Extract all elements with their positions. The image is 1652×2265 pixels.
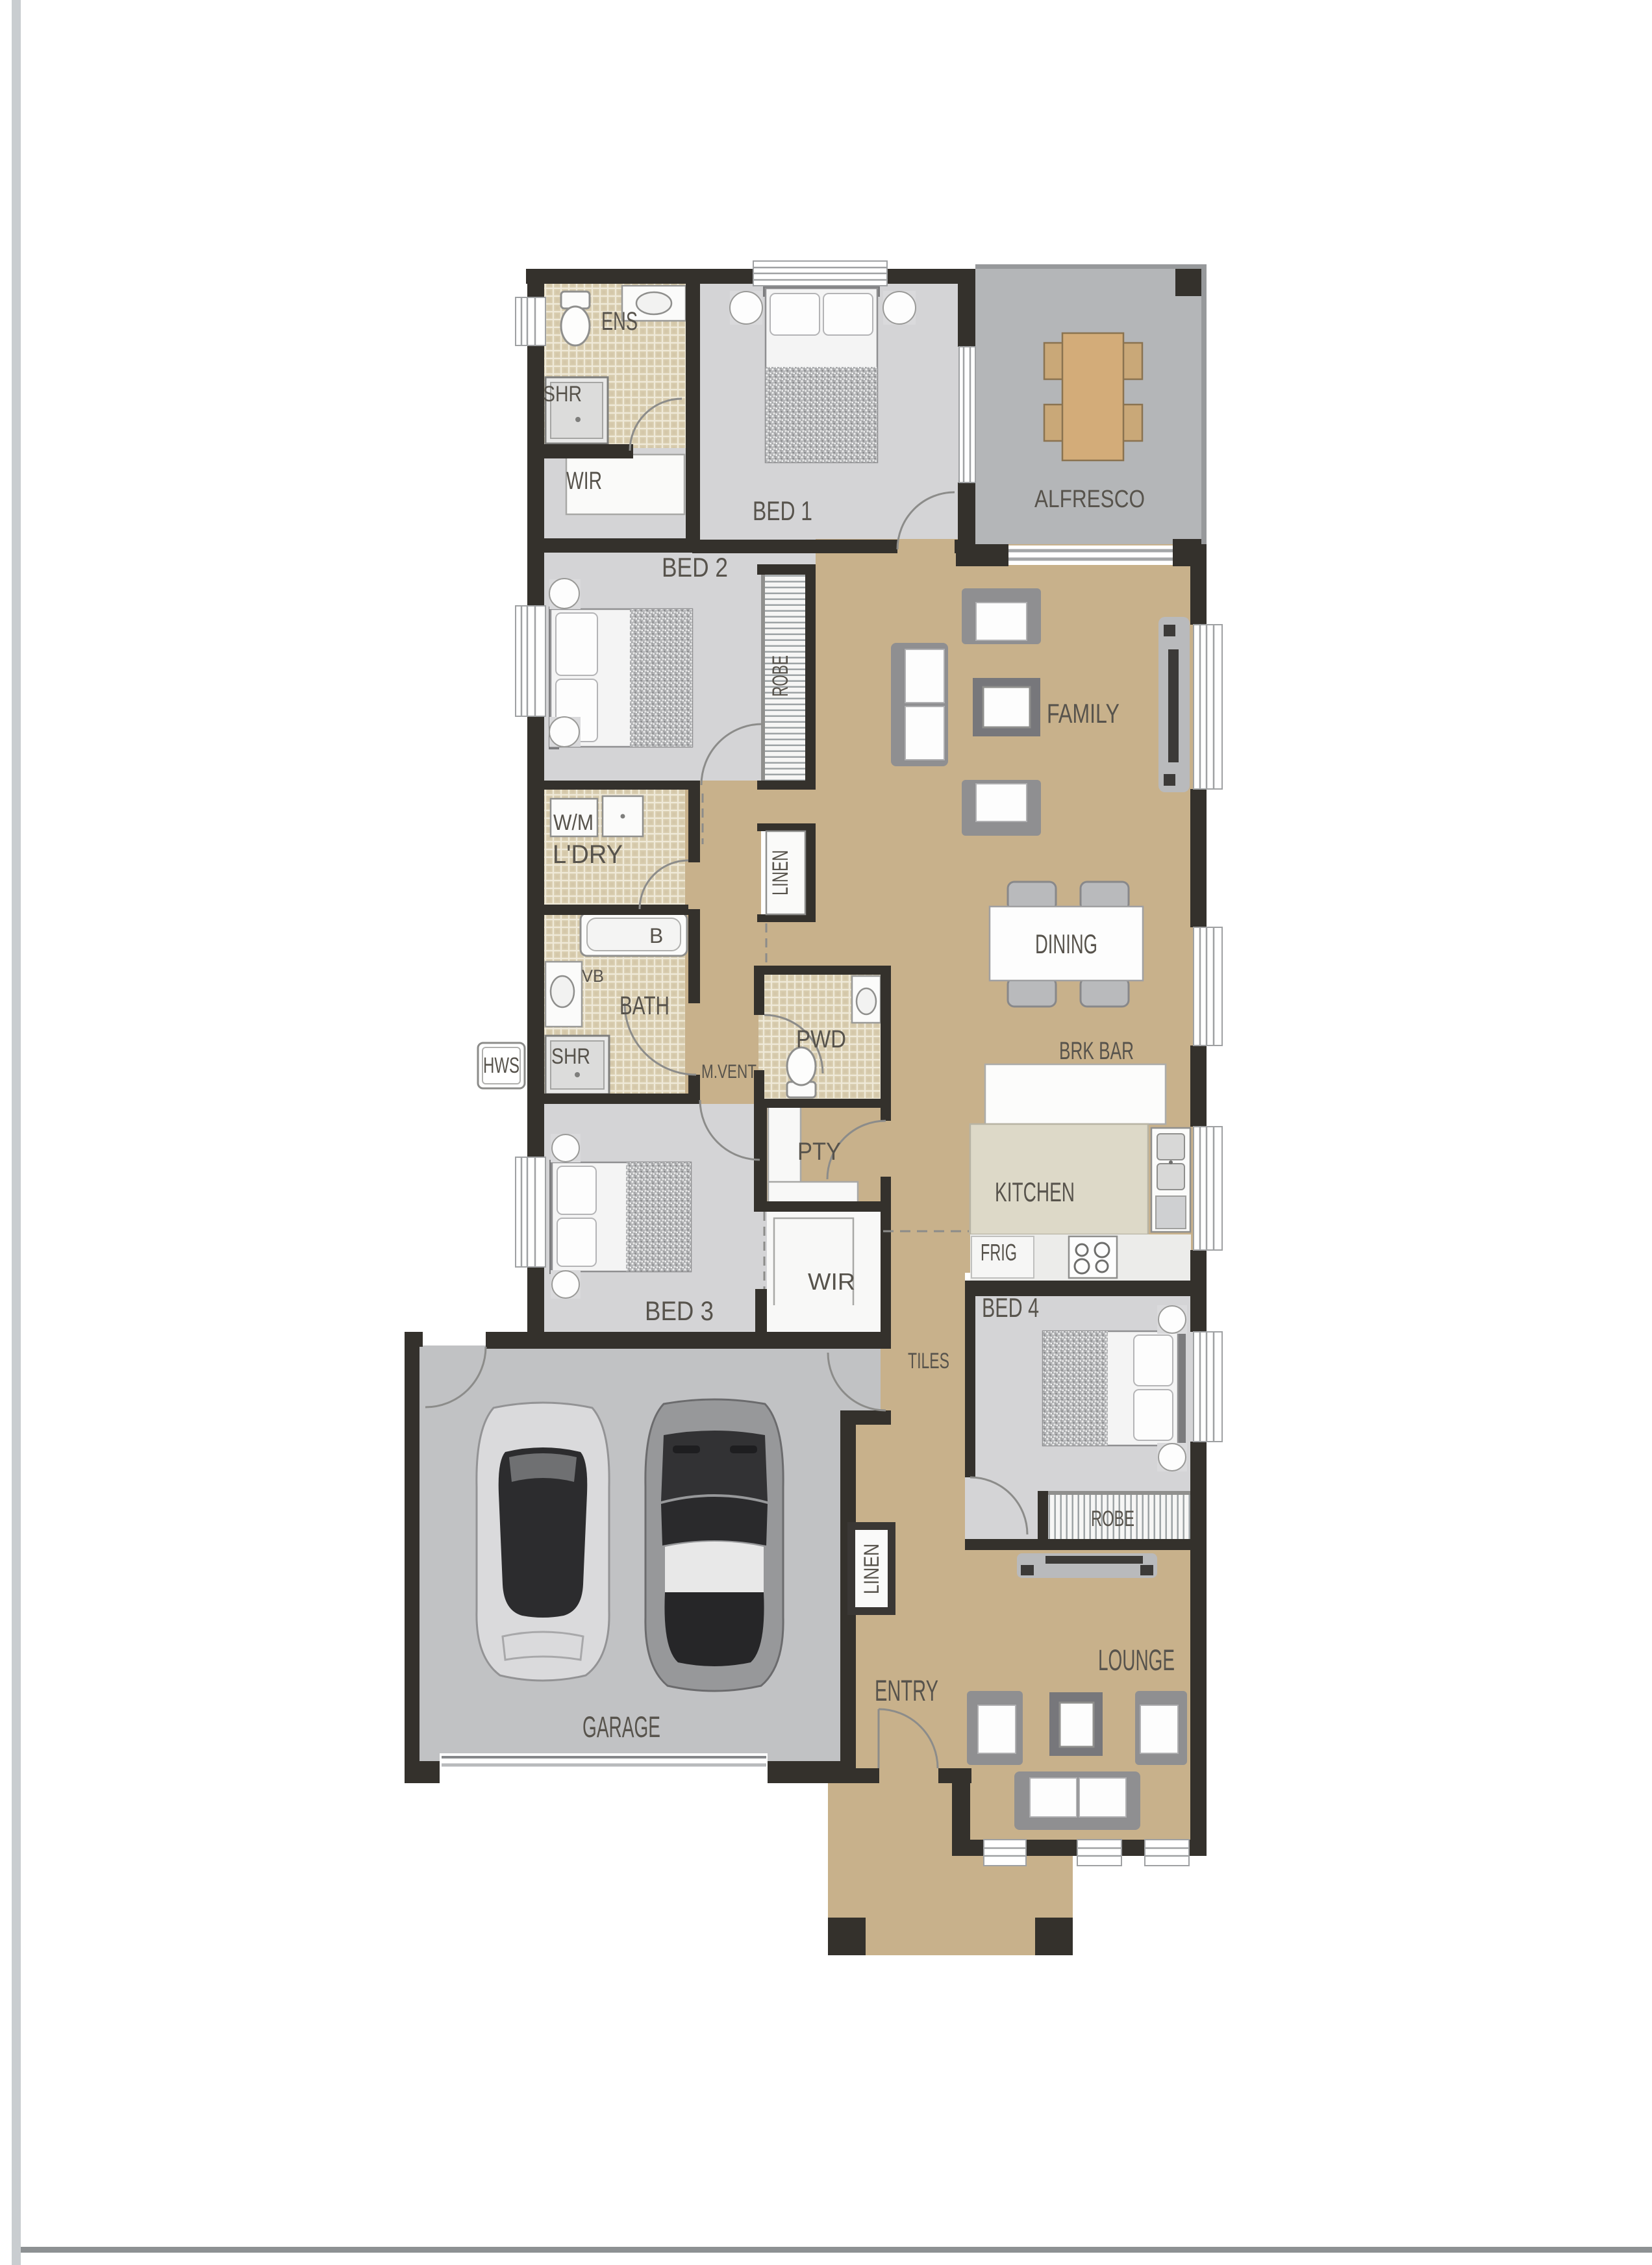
svg-text:TILES: TILES (908, 1349, 949, 1373)
svg-text:ROBE: ROBE (1091, 1507, 1134, 1531)
svg-text:SHR: SHR (543, 382, 582, 407)
svg-text:LINEN: LINEN (860, 1544, 883, 1594)
svg-text:LINEN: LINEN (768, 850, 793, 895)
svg-text:FAMILY: FAMILY (1047, 698, 1120, 729)
svg-text:FRIG: FRIG (981, 1239, 1017, 1266)
svg-text:SHR: SHR (551, 1044, 590, 1069)
svg-text:BATH: BATH (619, 992, 670, 1020)
svg-text:KITCHEN: KITCHEN (995, 1177, 1075, 1207)
svg-text:BRK BAR: BRK BAR (1059, 1038, 1134, 1065)
svg-text:L'DRY: L'DRY (553, 840, 623, 869)
svg-text:VB: VB (582, 966, 604, 986)
svg-text:PTY: PTY (797, 1138, 841, 1166)
svg-text:ALFRESCO: ALFRESCO (1034, 486, 1145, 513)
svg-text:M.VENT: M.VENT (701, 1061, 757, 1082)
svg-text:ROBE: ROBE (768, 655, 793, 697)
svg-text:BED 4: BED 4 (982, 1292, 1039, 1323)
svg-text:PWD: PWD (796, 1026, 846, 1053)
svg-text:HWS: HWS (483, 1053, 519, 1078)
svg-text:BED 1: BED 1 (753, 495, 812, 526)
svg-text:GARAGE: GARAGE (582, 1710, 660, 1744)
svg-text:ENTRY: ENTRY (875, 1674, 938, 1707)
svg-text:WIR: WIR (566, 468, 602, 495)
svg-text:BED 2: BED 2 (662, 552, 728, 582)
svg-text:BED 3: BED 3 (645, 1295, 714, 1326)
svg-text:W/M: W/M (553, 810, 594, 835)
svg-text:LOUNGE: LOUNGE (1098, 1644, 1175, 1677)
svg-text:B: B (649, 924, 663, 947)
svg-text:DINING: DINING (1035, 929, 1097, 959)
svg-text:ENS: ENS (601, 307, 638, 336)
svg-text:WIR: WIR (808, 1268, 855, 1295)
